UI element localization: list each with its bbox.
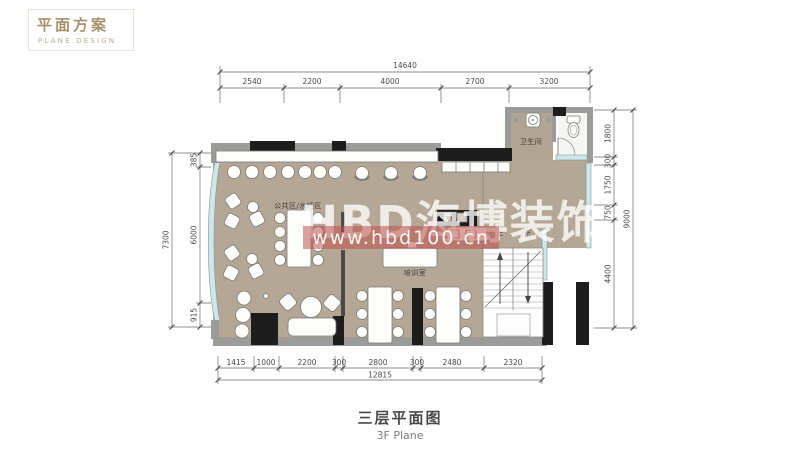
dim-bottom-total: 12815 (368, 371, 392, 380)
plan-subtitle: 3F Plane (0, 429, 800, 442)
floor-drain (514, 118, 519, 123)
dim-left-seg-3: 915 (190, 308, 199, 323)
dim-bottom-seg-8: 2320 (503, 358, 522, 367)
dim-left-total: 7300 (162, 230, 171, 249)
dim-top-seg-5: 3200 (539, 77, 558, 86)
bar-counter (288, 318, 336, 336)
watermark-url: www.hbd100.cn (312, 227, 490, 249)
dim-top-total: 14640 (393, 61, 417, 70)
dim-top-seg-3: 4000 (380, 77, 399, 86)
floor-plan-drawing: 公共区/水吧区 培训室 卫生间 上 下 HBD海博装饰 www.hbd100.c… (0, 0, 800, 450)
dim-bottom-seg-7: 2480 (442, 358, 461, 367)
label-bathroom: 卫生间 (520, 137, 543, 146)
dim-bottom-seg-3: 2200 (297, 358, 316, 367)
plan-title: 三层平面图 (0, 407, 800, 428)
staircase (483, 248, 543, 337)
dim-right-seg-5: 4400 (604, 264, 613, 283)
dim-right-seg-4: 750 (604, 205, 613, 220)
dim-bottom-seg-4: 300 (332, 358, 347, 367)
training-table (368, 287, 392, 343)
dim-right-seg-1: 1800 (604, 124, 613, 143)
training-table (436, 287, 460, 343)
dim-bottom-seg-5: 2800 (368, 358, 387, 367)
round-table (301, 297, 322, 318)
dim-right-total: 9000 (623, 209, 632, 228)
dim-right-seg-2: 300 (604, 154, 613, 169)
dim-left-seg-2: 6000 (190, 225, 199, 244)
dim-bottom-seg-6: 300 (410, 358, 425, 367)
label-training-room: 培训室 (404, 268, 427, 277)
dim-left-seg-1: 385 (190, 153, 199, 168)
dimension-chain-left: 385 6000 915 7300 (162, 151, 212, 330)
dim-top-seg-2: 2200 (302, 77, 321, 86)
dim-top-seg-4: 2700 (465, 77, 484, 86)
podium-table (383, 248, 437, 267)
dim-bottom-seg-1: 1415 (226, 358, 245, 367)
dim-top-seg-1: 2540 (242, 77, 261, 86)
footer-title-block: 三层平面图 3F Plane (0, 407, 800, 442)
slide: 平面方案 PLANE DESIGN (0, 0, 800, 450)
floor-drain (547, 118, 552, 123)
watermark: HBD海博装饰 www.hbd100.cn (300, 196, 603, 249)
dimension-chain-bottom: 1415 1000 2200 300 2800 300 2480 2320 12… (216, 356, 545, 384)
dimension-chain-top: 14640 2540 2200 4000 2700 3200 (218, 61, 593, 103)
toilet-tank (567, 116, 580, 123)
dim-right-seg-3: 1750 (604, 175, 613, 194)
dim-bottom-seg-2: 1000 (256, 358, 275, 367)
